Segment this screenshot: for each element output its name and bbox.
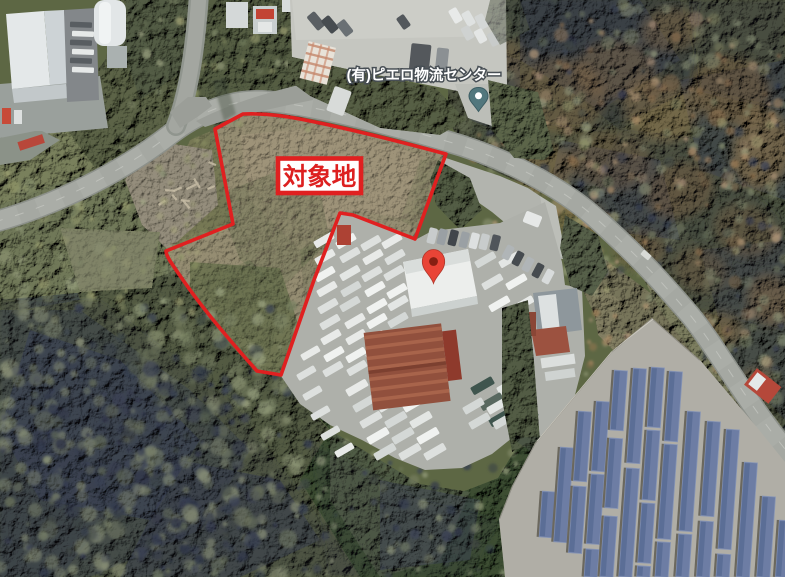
svg-text:対象地: 対象地 — [283, 163, 357, 191]
svg-text:(有)ピエロ物流センター: (有)ピエロ物流センター — [347, 66, 502, 84]
